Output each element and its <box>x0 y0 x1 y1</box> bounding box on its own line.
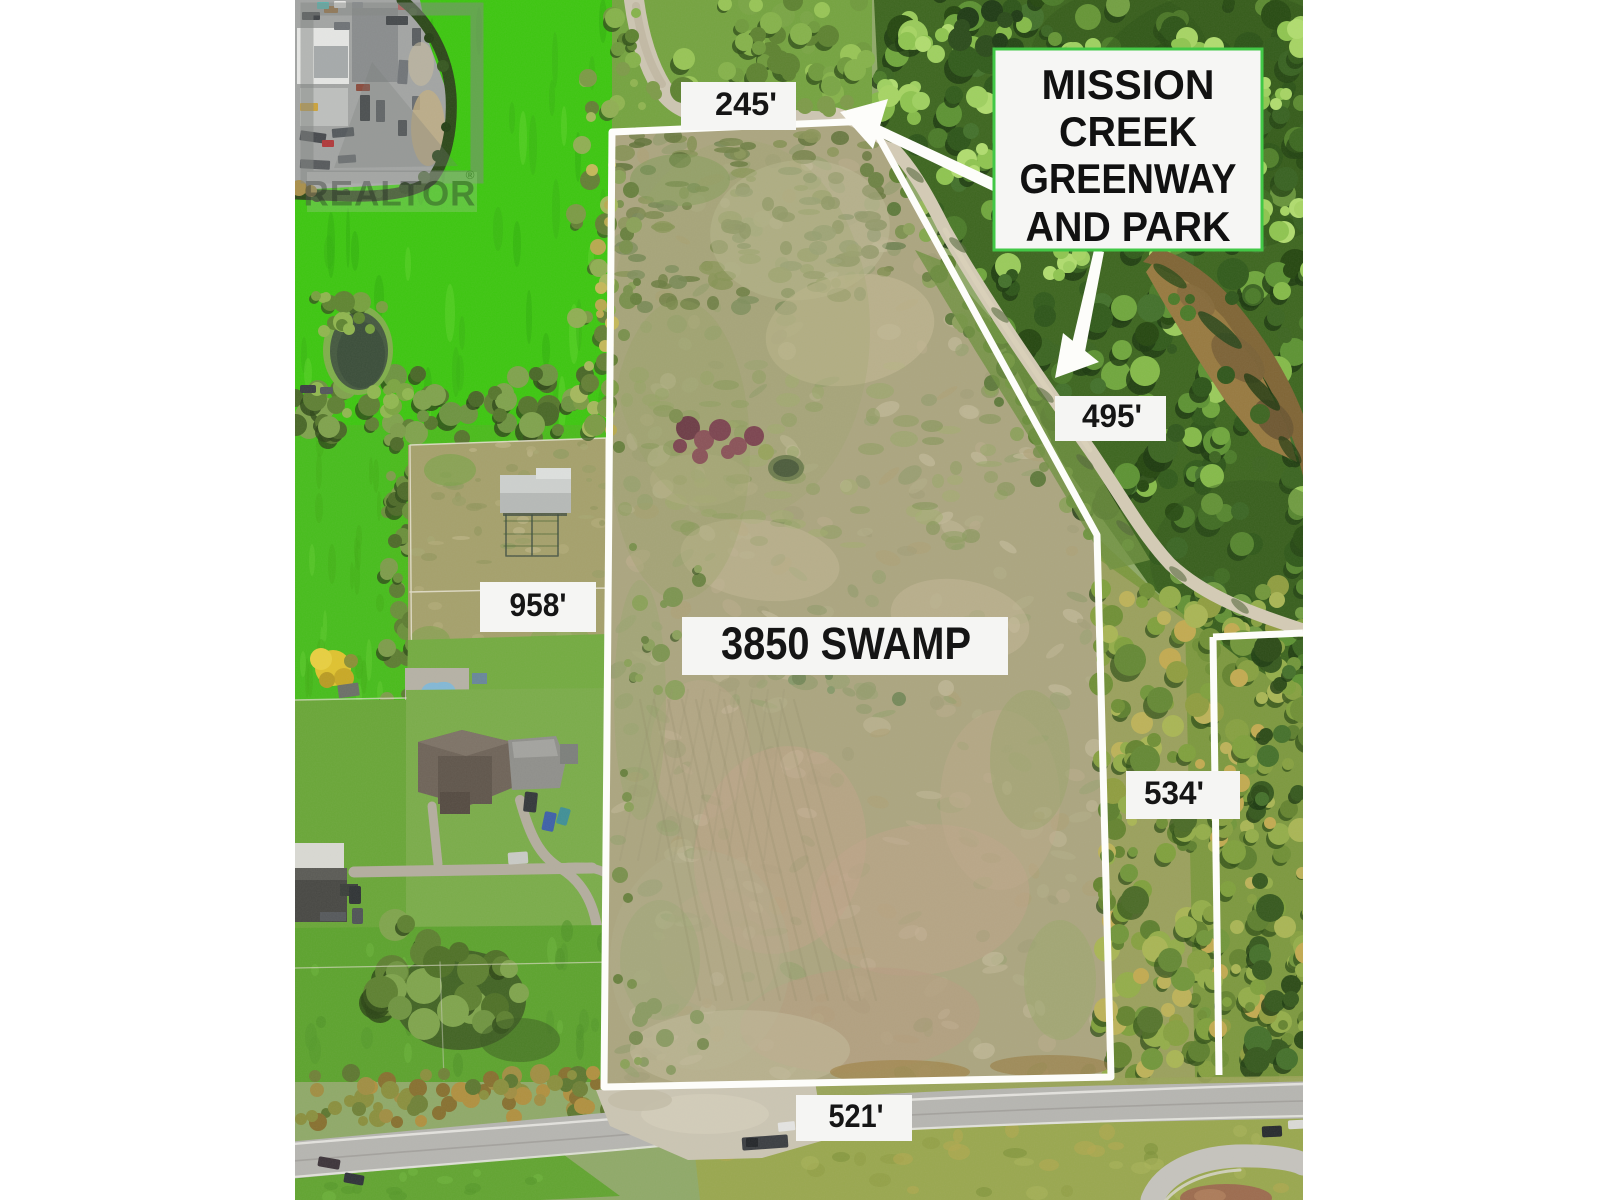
svg-text:958': 958' <box>510 587 567 623</box>
svg-text:521': 521' <box>829 1098 884 1134</box>
svg-text:MISSION: MISSION <box>1042 61 1215 108</box>
svg-text:®: ® <box>466 168 475 182</box>
svg-text:REALTOR: REALTOR <box>304 175 477 214</box>
svg-text:GREENWAY: GREENWAY <box>1020 155 1237 202</box>
svg-text:AND PARK: AND PARK <box>1026 203 1231 250</box>
svg-text:245': 245' <box>715 86 777 122</box>
svg-text:3850 SWAMP: 3850 SWAMP <box>721 618 971 669</box>
svg-text:534': 534' <box>1144 775 1204 811</box>
svg-text:CREEK: CREEK <box>1059 108 1197 155</box>
svg-text:495': 495' <box>1082 398 1142 434</box>
